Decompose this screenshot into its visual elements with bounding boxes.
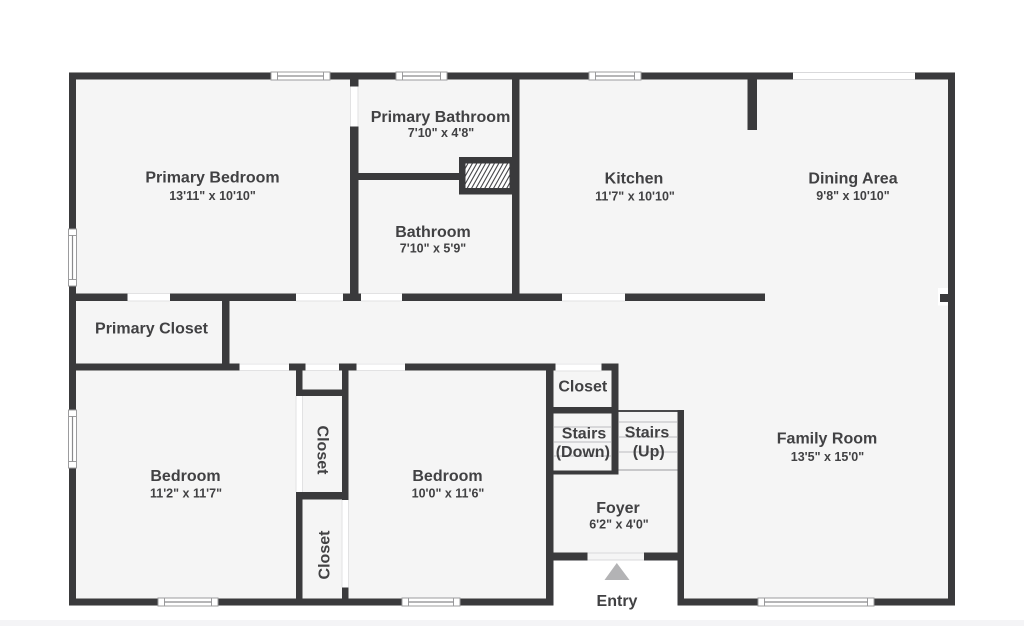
- svg-text:10'0" x 11'6": 10'0" x 11'6": [412, 487, 485, 501]
- svg-text:13'5" x 15'0": 13'5" x 15'0": [791, 450, 864, 464]
- svg-text:Entry: Entry: [597, 593, 638, 610]
- svg-text:Primary Closet: Primary Closet: [95, 320, 209, 337]
- svg-text:7'10" x 4'8": 7'10" x 4'8": [408, 126, 475, 140]
- svg-text:Dining Area: Dining Area: [808, 170, 897, 187]
- svg-text:Closet: Closet: [558, 378, 608, 395]
- svg-text:11'7" x 10'10": 11'7" x 10'10": [595, 190, 675, 204]
- svg-text:Foyer: Foyer: [596, 500, 640, 517]
- svg-text:Bathroom: Bathroom: [395, 224, 471, 241]
- svg-text:Closet: Closet: [314, 426, 331, 476]
- svg-text:Family Room: Family Room: [777, 431, 877, 448]
- svg-text:Bedroom: Bedroom: [150, 468, 220, 485]
- svg-text:(Down): (Down): [556, 444, 610, 461]
- svg-text:Stairs: Stairs: [625, 424, 670, 441]
- svg-text:Bedroom: Bedroom: [412, 468, 482, 485]
- svg-text:Closet: Closet: [316, 530, 333, 580]
- svg-text:13'11" x 10'10": 13'11" x 10'10": [169, 189, 256, 203]
- svg-text:9'8" x 10'10": 9'8" x 10'10": [816, 189, 889, 203]
- svg-text:11'2" x 11'7": 11'2" x 11'7": [150, 487, 222, 501]
- svg-text:Stairs: Stairs: [562, 425, 607, 442]
- svg-text:7'10" x 5'9": 7'10" x 5'9": [400, 242, 467, 256]
- svg-text:Kitchen: Kitchen: [605, 170, 664, 187]
- svg-text:(Up): (Up): [633, 443, 665, 460]
- svg-text:Primary Bedroom: Primary Bedroom: [145, 170, 279, 187]
- svg-text:6'2" x 4'0": 6'2" x 4'0": [589, 518, 649, 532]
- svg-text:Primary Bathroom: Primary Bathroom: [371, 109, 511, 126]
